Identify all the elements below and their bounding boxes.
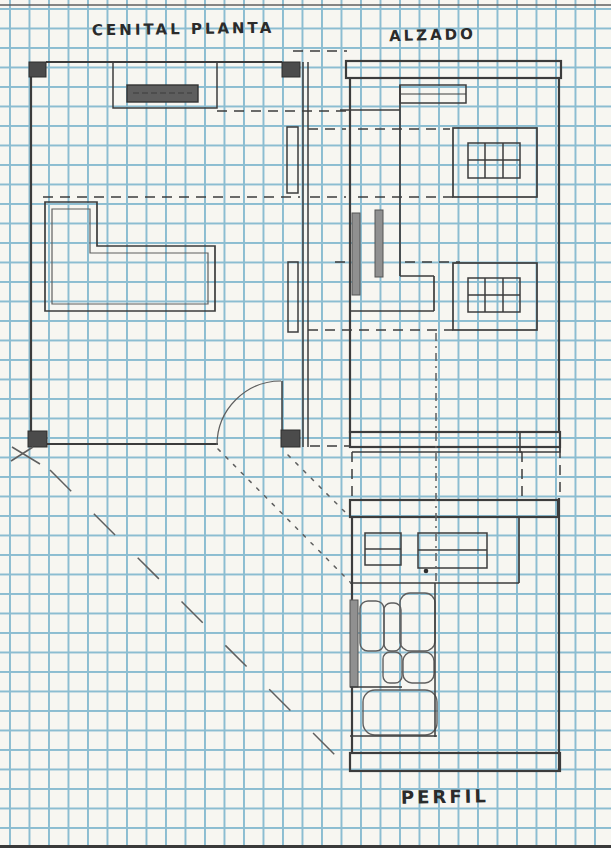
elevation-window-upper-frame xyxy=(453,128,537,197)
plan-door-arc xyxy=(217,381,281,445)
elevation-step-bench xyxy=(350,276,434,311)
elevation-window-upper-grid xyxy=(468,143,520,178)
profile-view-label: PERFIL xyxy=(401,785,489,808)
profile-sofa-shapes xyxy=(360,593,437,735)
plan-l-shape-inner xyxy=(52,209,208,304)
plan-corner-column-tr xyxy=(282,62,300,77)
profile-window-wide xyxy=(418,533,487,568)
profile-window-small xyxy=(365,533,401,565)
elevation-window-lower-frame xyxy=(453,263,537,330)
elevation-floor-dark-block xyxy=(520,432,560,452)
plan-l-shape-outer xyxy=(45,202,215,311)
diagonal-45deg-dashed-line xyxy=(50,470,335,755)
elevation-view-label: ALZADO xyxy=(389,25,476,45)
plan-corner-column-tl xyxy=(29,62,46,77)
elevation-post-left xyxy=(352,213,360,295)
plan-wall-leaf-lower xyxy=(288,262,298,332)
elevation-floor-hatch-band xyxy=(350,432,560,447)
profile-floor-hatch-band xyxy=(350,753,560,771)
plan-corner-column-bl xyxy=(28,431,47,447)
plan-corner-tick-marks xyxy=(11,447,40,464)
plan-wall-leaf-upper xyxy=(287,127,298,193)
profile-shaded-strip xyxy=(350,600,358,687)
graph-paper-page: CENITAL PLANTA ALZADO PERFIL xyxy=(0,0,611,848)
sketch-svg xyxy=(0,0,611,848)
elevation-roof-hatch-band xyxy=(346,61,561,78)
profile-dot-mark xyxy=(424,569,429,574)
plan-corner-column-br xyxy=(281,430,300,447)
elevation-window-lower-grid xyxy=(468,278,520,312)
dotted-transfer-line-a xyxy=(218,449,350,582)
profile-view xyxy=(350,498,560,771)
dashed-vertical-connectors xyxy=(352,448,560,500)
profile-roof-hatch-band xyxy=(350,500,558,517)
plan-central-double-wall xyxy=(303,62,308,447)
plan-view xyxy=(11,62,308,464)
dotted-transfer-line-b xyxy=(288,455,350,517)
elevation-view xyxy=(340,61,561,452)
projection-lines xyxy=(43,51,560,755)
elevation-post-right xyxy=(375,210,383,277)
plan-view-label: CENITAL PLANTA xyxy=(92,19,274,40)
